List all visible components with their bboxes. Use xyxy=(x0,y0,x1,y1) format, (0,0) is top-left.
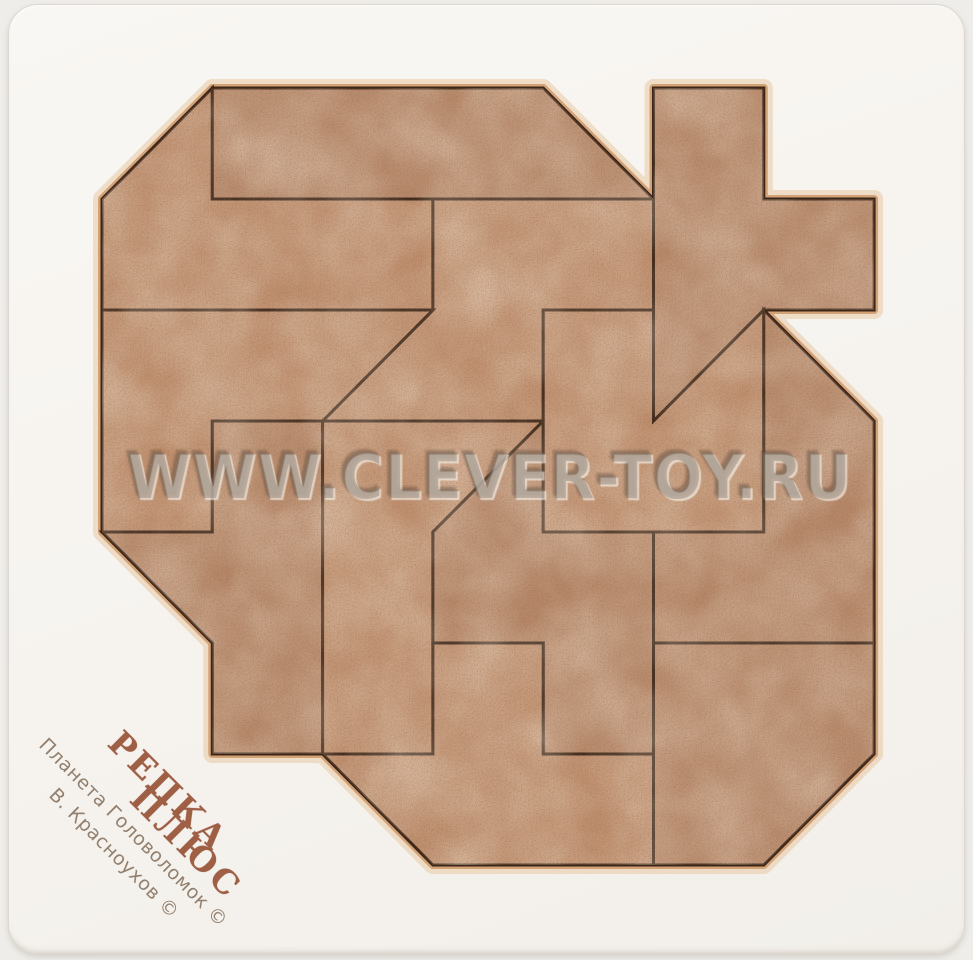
product-photo: WWW.CLEVER-TOY.RU РЕПКА ПЛЮС Планета Гол… xyxy=(0,0,973,960)
